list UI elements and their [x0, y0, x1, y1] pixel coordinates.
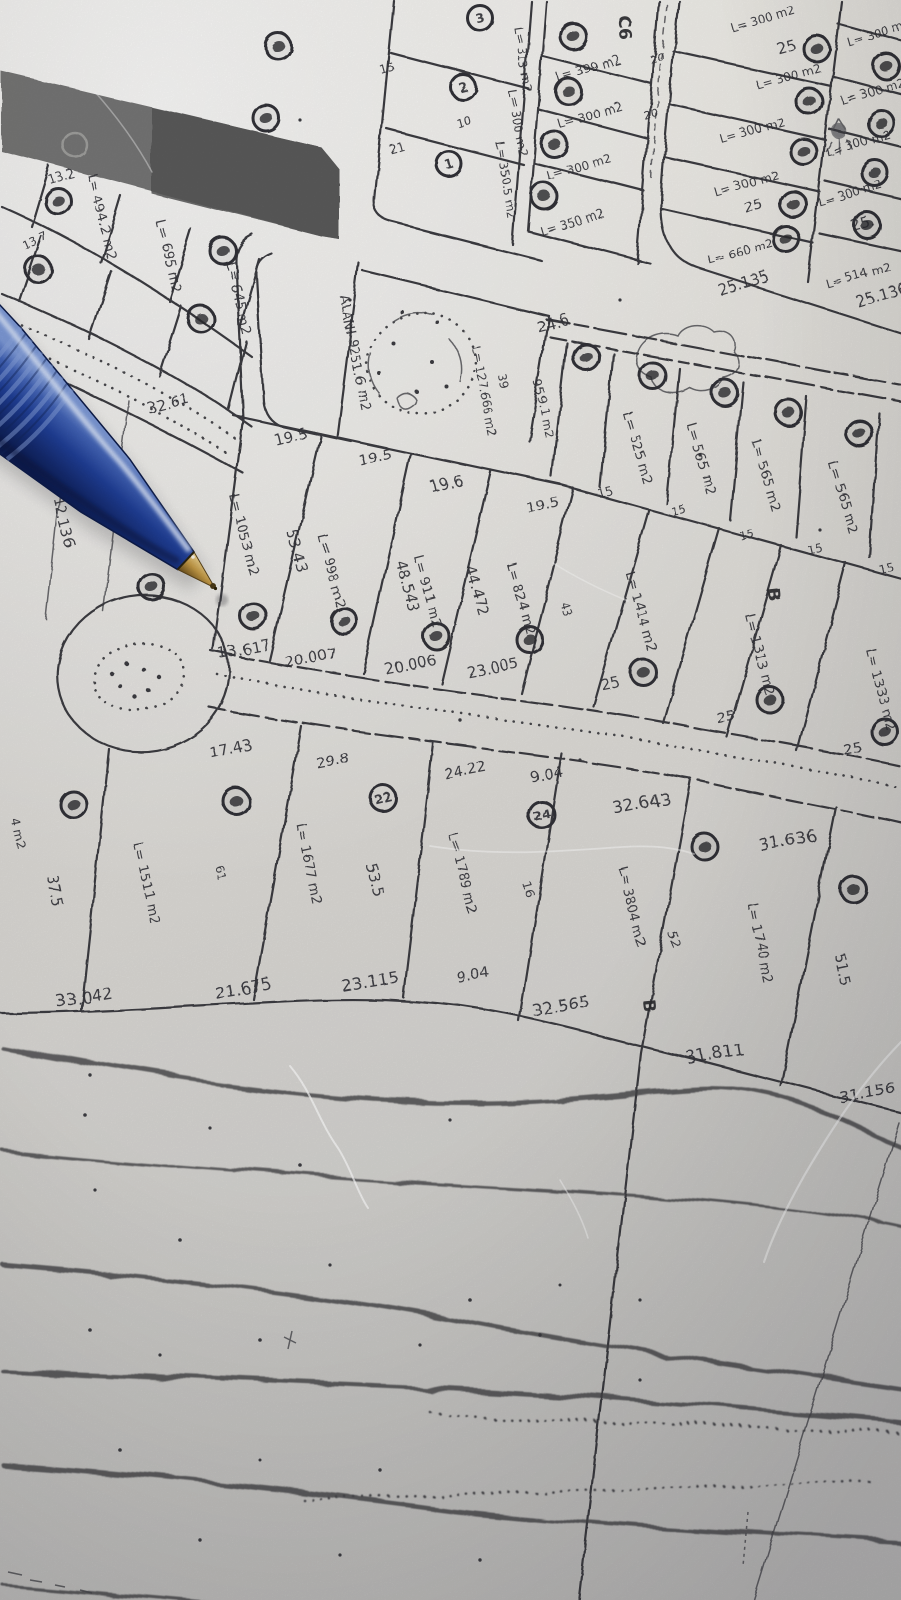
map-canvas: 32.61 19.5 19.5 19.6 19.5 15 15 15 15 15…: [0, 0, 901, 1600]
vignette: [0, 0, 901, 1600]
photo-cadastral-map: 32.61 19.5 19.5 19.6 19.5 15 15 15 15 15…: [0, 0, 901, 1600]
